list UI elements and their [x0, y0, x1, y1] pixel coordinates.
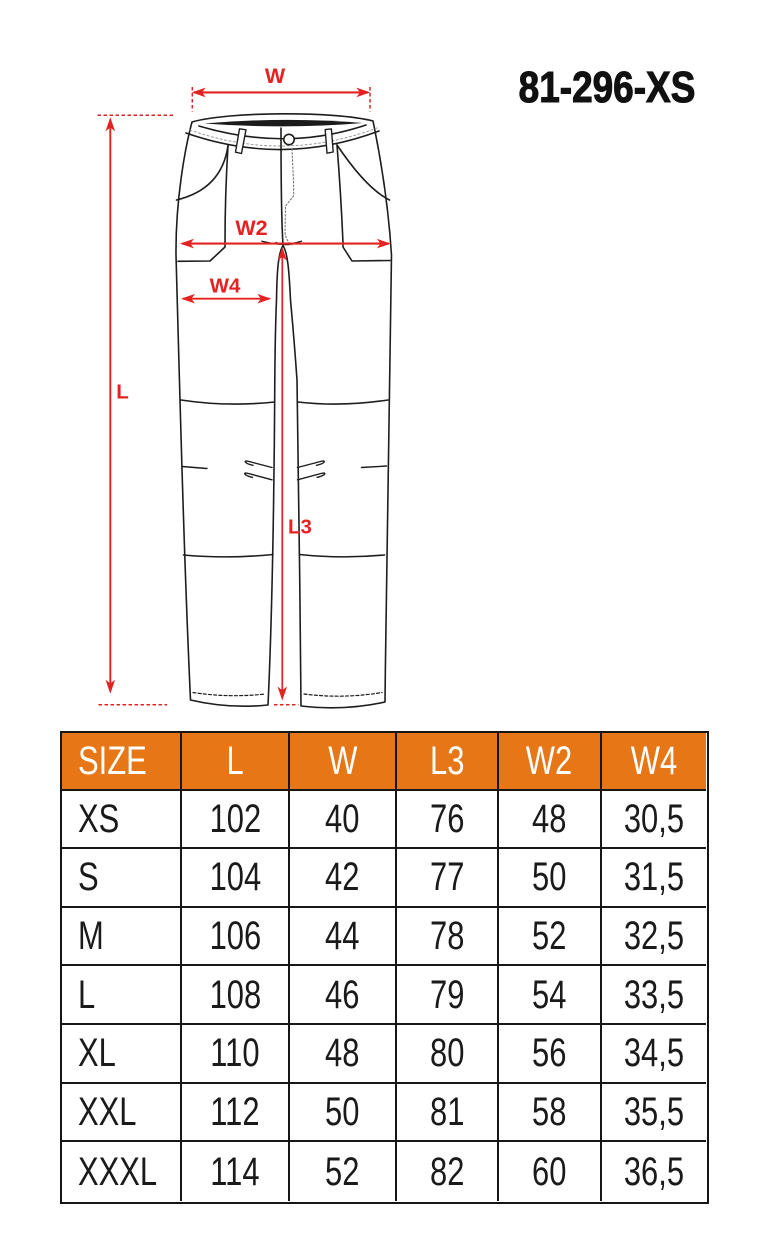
svg-text:L: L	[116, 381, 129, 404]
svg-text:W2: W2	[235, 216, 267, 240]
svg-text:W: W	[265, 64, 286, 88]
svg-text:L3: L3	[288, 516, 312, 539]
svg-text:W4: W4	[210, 274, 241, 297]
